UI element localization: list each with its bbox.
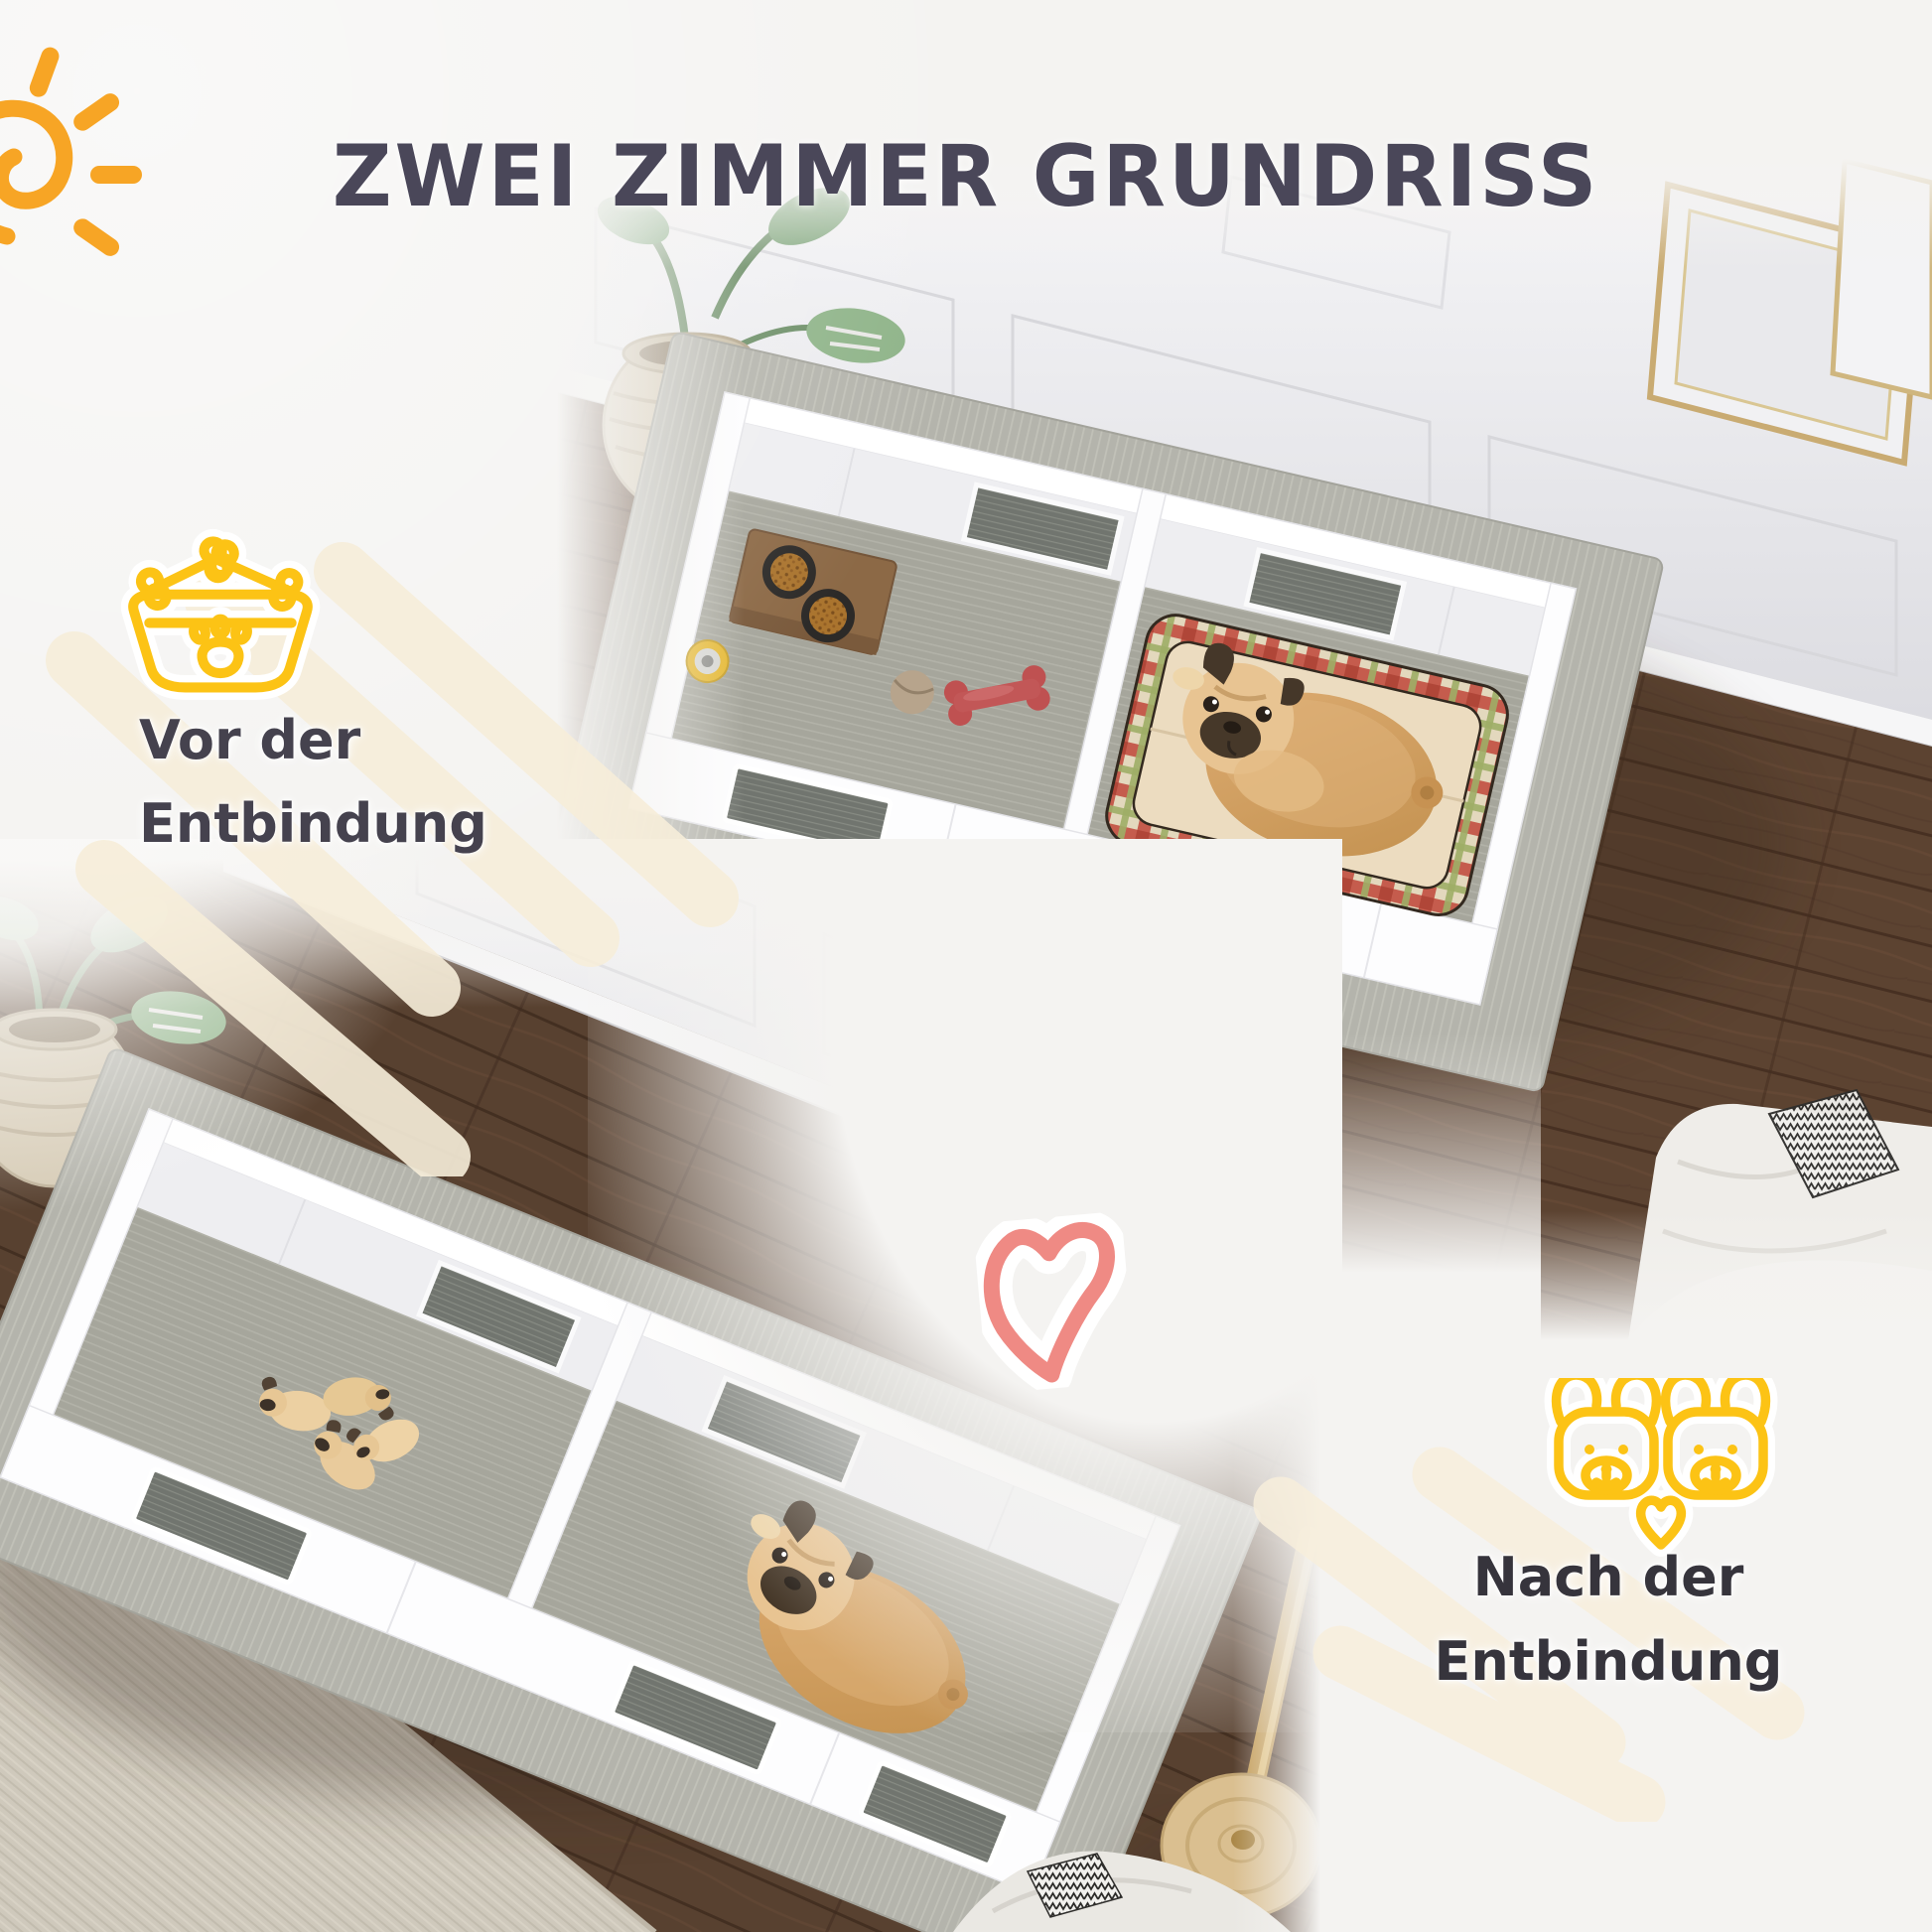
label-line: Entbindung <box>139 782 487 866</box>
label-line: Entbindung <box>1370 1619 1847 1704</box>
photo-pen-after-birth <box>0 839 1342 1932</box>
promo-image: ZWEI ZIMMER GRUNDRISS <box>0 0 1932 1932</box>
label-line: Vor der <box>139 699 487 782</box>
label-before-birth: Vor der Entbindung <box>139 699 487 866</box>
page-title: ZWEI ZIMMER GRUNDRISS <box>39 127 1893 226</box>
dog-bowl-bones-icon <box>111 524 330 719</box>
label-after-birth: Nach der Entbindung <box>1370 1535 1847 1704</box>
heart-icon <box>973 1211 1136 1394</box>
label-line: Nach der <box>1370 1535 1847 1619</box>
pen-scene-after <box>0 839 1342 1932</box>
